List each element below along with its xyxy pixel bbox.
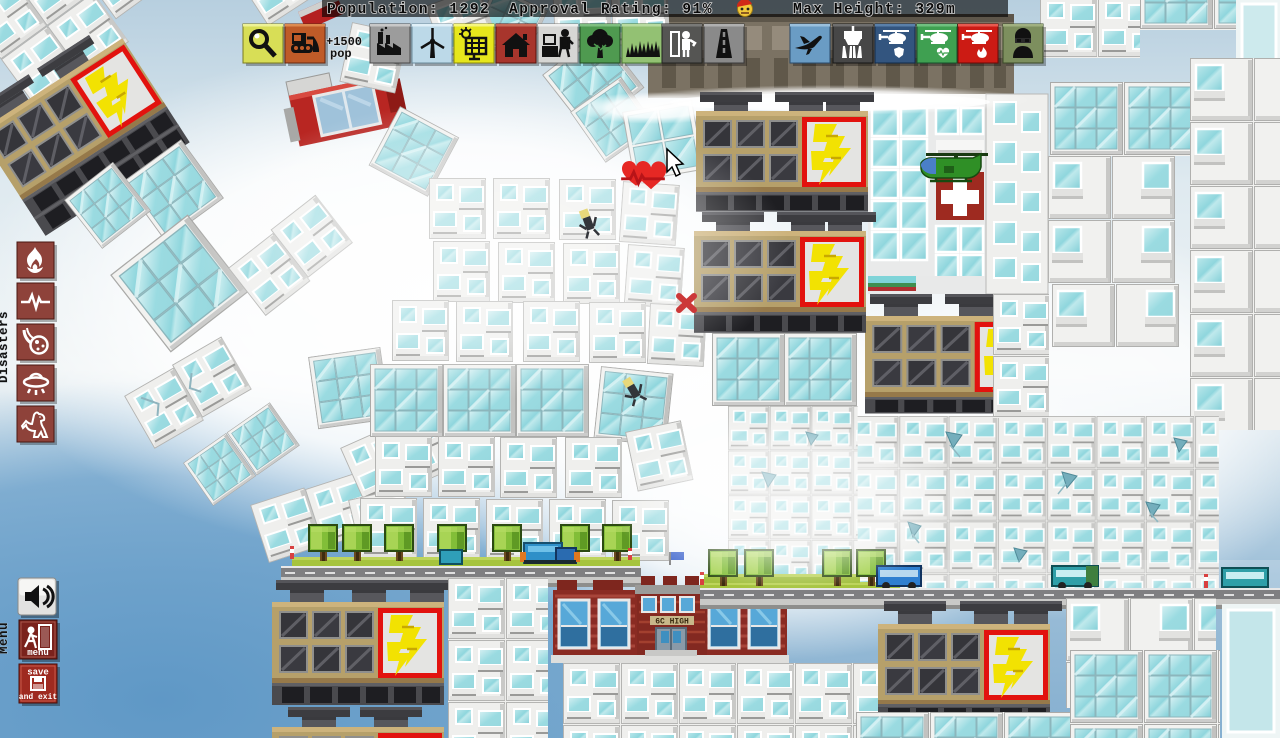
svg-text:pop: pop — [330, 47, 352, 61]
svg-text:Disasters: Disasters — [0, 311, 11, 383]
svg-text:and exit: and exit — [19, 693, 58, 702]
svg-text:menu: menu — [27, 648, 49, 658]
svg-text:6C HIGH: 6C HIGH — [655, 618, 689, 627]
svg-text:Approval Rating: 91%: Approval Rating: 91% — [509, 2, 713, 18]
svg-text:Menu: Menu — [0, 622, 11, 654]
svg-text:Population: 1292: Population: 1292 — [327, 2, 490, 18]
svg-text:Max Height: 329m: Max Height: 329m — [793, 2, 956, 18]
